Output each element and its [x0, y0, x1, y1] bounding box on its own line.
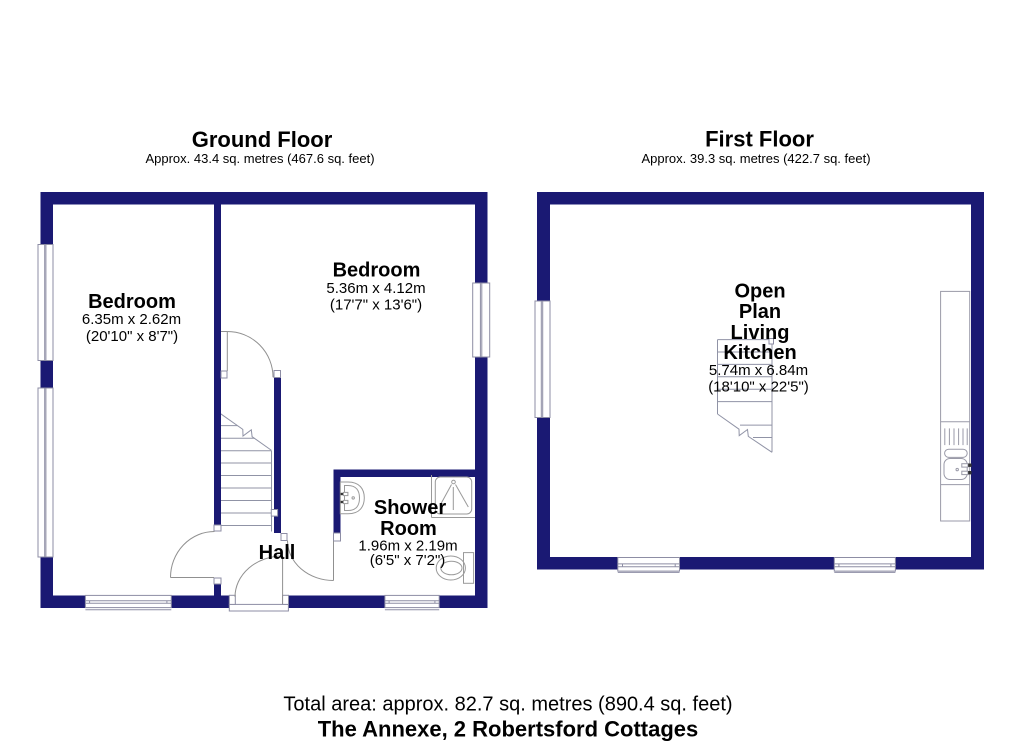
svg-text:Approx. 43.4 sq. metres (467.6: Approx. 43.4 sq. metres (467.6 sq. feet) [145, 151, 374, 166]
svg-text:Kitchen: Kitchen [723, 342, 796, 364]
svg-text:(6'5" x 7'2"): (6'5" x 7'2") [370, 552, 446, 569]
svg-text:5.74m x 6.84m: 5.74m x 6.84m [709, 362, 808, 379]
svg-text:Living: Living [731, 322, 790, 344]
svg-text:Ground Floor: Ground Floor [192, 127, 333, 152]
svg-text:Open: Open [734, 281, 785, 303]
svg-text:Plan: Plan [739, 301, 781, 323]
svg-text:Shower: Shower [374, 497, 446, 519]
svg-text:6.35m x 2.62m: 6.35m x 2.62m [82, 311, 181, 328]
svg-text:(17'7" x 13'6"): (17'7" x 13'6") [330, 297, 422, 314]
svg-text:5.36m x 4.12m: 5.36m x 4.12m [326, 280, 425, 297]
svg-text:The Annexe, 2 Robertsford Cott: The Annexe, 2 Robertsford Cottages [318, 717, 699, 742]
svg-text:First Floor: First Floor [705, 127, 814, 152]
svg-text:Hall: Hall [259, 542, 296, 564]
svg-text:(18'10" x 22'5"): (18'10" x 22'5") [708, 379, 809, 396]
svg-text:Total area: approx. 82.7 sq. m: Total area: approx. 82.7 sq. metres (890… [283, 694, 732, 716]
svg-text:Bedroom: Bedroom [88, 291, 176, 313]
svg-text:Bedroom: Bedroom [333, 260, 421, 282]
svg-text:(20'10" x 8'7"): (20'10" x 8'7") [86, 328, 178, 345]
svg-text:Approx. 39.3 sq. metres (422.7: Approx. 39.3 sq. metres (422.7 sq. feet) [641, 151, 870, 166]
